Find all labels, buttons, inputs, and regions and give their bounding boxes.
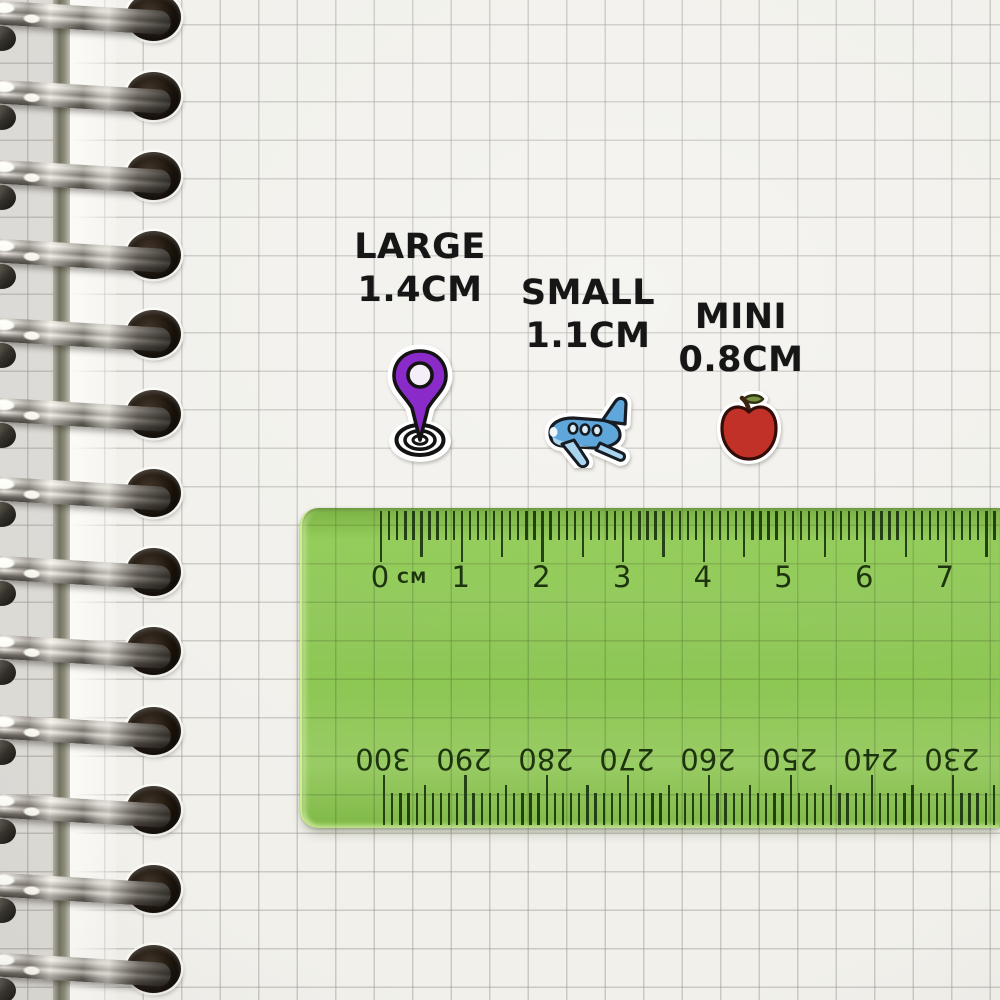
ruler-tick [501,511,503,557]
ruler-tick [741,793,743,825]
ruler-number: 1 [451,560,469,594]
ruler-tick [798,793,800,825]
ruler-number-flipped: 260 [681,742,736,776]
ruler-tick [733,793,735,825]
ruler-tick [651,793,653,825]
ruler-tick [840,511,842,540]
ruler-tick [800,511,802,540]
ruler-tick [895,793,897,825]
ruler-tick [646,511,648,540]
ruler-tick [440,793,442,825]
ruler-tick [614,511,616,540]
ruler-tick [549,511,551,540]
ruler-tick [921,511,923,540]
ruler-tick [871,775,873,825]
label-small-size: 1.1CM [521,315,655,358]
ruler-tick [582,511,584,557]
ruler-tick [537,793,539,825]
ruler-tick [464,775,466,825]
ruler-tick [635,793,637,825]
ruler-tick [558,511,560,540]
label-large-name: LARGE [354,226,485,269]
ruler-tick [929,511,931,540]
ruler-tick [546,775,548,825]
ruler-tick [700,793,702,825]
ruler-tick [630,511,632,540]
ruler-tick [428,511,430,540]
ruler-tick [603,793,605,825]
ruler-tick [985,511,987,557]
ruler-tick [830,785,832,825]
ruler-tick [391,793,393,825]
ruler-tick [420,511,422,557]
location-pin-sticker [385,344,455,463]
ruler-tick [469,511,471,540]
ruler-number-flipped: 290 [437,742,492,776]
ruler-tick [848,511,850,540]
ruler-surface-sheen [300,508,1000,828]
ruler-tick [570,793,572,825]
ruler-tick [380,511,382,562]
ruler-tick [887,793,889,825]
ruler-tick [905,511,907,557]
label-large: LARGE 1.4CM [354,226,485,311]
ruler-tick [913,511,915,540]
ruler-number-flipped: 250 [762,742,817,776]
ruler-tick [993,511,995,540]
ruler-tick [554,793,556,825]
ruler-tick [432,793,434,825]
ruler-tick [888,511,890,540]
ruler-tick [928,793,930,825]
ruler-number: 4 [694,560,712,594]
ruler-tick [687,511,689,540]
ruler-tick [407,793,409,825]
ruler-tick [453,511,455,540]
ruler-tick [806,793,808,825]
ruler-tick [513,793,515,825]
ruler-number-flipped: 300 [355,742,410,776]
ruler-number: 5 [774,560,792,594]
apple-sticker [710,391,789,468]
ruler-tick [578,793,580,825]
ruler-tick [952,775,954,825]
ruler-tick [445,511,447,540]
ruler-tick [627,775,629,825]
ruler-tick [448,793,450,825]
ruler-tick [412,511,414,540]
ruler-tick [388,511,390,540]
ruler-tick [505,785,507,825]
ruler-tick [708,775,710,825]
ruler-tick [692,793,694,825]
ruler-tick [724,793,726,825]
ruler-unit-label: CM [397,568,428,587]
ruler-tick [896,511,898,540]
ruler-tick [953,511,955,540]
ruler-tick [838,793,840,825]
ruler-tick [489,793,491,825]
ruler-tick [945,511,947,562]
ruler-tick [521,793,523,825]
ruler-tick [679,511,681,540]
ruler-tick [598,511,600,540]
ruler-tick [472,793,474,825]
ruler-tick [864,511,866,562]
ruler-tick [816,511,818,540]
ruler-tick [676,793,678,825]
ruler-tick [562,793,564,825]
ruler-tick [716,793,718,825]
ruler-tick [668,785,670,825]
ruler-number-flipped: 270 [599,742,654,776]
ruler-tick [911,785,913,825]
ruler-tick [662,511,664,557]
ruler-tick [590,511,592,540]
ruler-tick [456,793,458,825]
ruler-tick [773,793,775,825]
airplane-sticker [540,391,645,468]
ruler-tick [936,793,938,825]
ruler-tick [784,511,786,562]
ruler-tick [606,511,608,540]
ruler-tick [977,511,979,540]
ruler-tick [832,511,834,540]
ruler-tick [622,511,624,562]
ruler-tick [879,793,881,825]
ruler-tick [529,793,531,825]
ruler-tick [903,793,905,825]
ruler: 01234567 CM 300290280270260250240230 [300,508,1000,828]
ruler-tick [856,511,858,540]
ruler-tick [711,511,713,540]
ruler-number: 3 [613,560,631,594]
ruler-tick [872,511,874,540]
ruler-tick [767,511,769,540]
ruler-tick [533,511,535,540]
ruler-tick [937,511,939,540]
ruler-tick [775,511,777,540]
ruler-number: 2 [532,560,550,594]
ruler-tick [960,793,962,825]
ruler-tick [822,793,824,825]
ruler-tick [759,511,761,540]
ruler-tick [976,793,978,825]
ruler-tick [743,511,745,557]
ruler-tick [790,775,792,825]
ruler-tick [757,793,759,825]
ruler-tick [814,793,816,825]
ruler-tick [594,793,596,825]
ruler-tick [968,793,970,825]
ruler-tick [944,793,946,825]
ruler-tick [824,511,826,557]
ruler-tick [525,511,527,540]
ruler-tick [477,511,479,540]
ruler-tick [481,793,483,825]
ruler-tick [751,511,753,540]
ruler-tick [424,785,426,825]
label-small: SMALL 1.1CM [521,272,655,357]
ruler-tick [969,511,971,540]
ruler-number: 7 [936,560,954,594]
ruler-number: 6 [855,560,873,594]
label-mini: MINI 0.8CM [678,296,803,381]
ruler-tick [961,511,963,540]
ruler-tick [695,511,697,540]
ruler-tick [654,511,656,540]
label-mini-size: 0.8CM [678,339,803,382]
ruler-tick [792,511,794,540]
ruler-number: 0 [371,560,389,594]
ruler-tick [765,793,767,825]
ruler-tick [880,511,882,540]
ruler-tick [493,511,495,540]
ruler-number-flipped: 240 [843,742,898,776]
ruler-tick [509,511,511,540]
ruler-number-flipped: 280 [518,742,573,776]
ruler-tick [659,793,661,825]
label-large-size: 1.4CM [354,269,485,312]
ruler-tick [781,793,783,825]
label-mini-name: MINI [678,296,803,339]
ruler-tick [461,511,463,562]
ruler-tick [611,793,613,825]
ruler-number-flipped: 230 [924,742,979,776]
ruler-tick [749,785,751,825]
ruler-tick [541,511,543,562]
ruler-tick [485,511,487,540]
ruler-tick [619,793,621,825]
ruler-tick [735,511,737,540]
ruler-tick [920,793,922,825]
label-small-name: SMALL [521,272,655,315]
ruler-tick [719,511,721,540]
ruler-tick [846,793,848,825]
ruler-tick [671,511,673,540]
notebook-photo: LARGE 1.4CM SMALL 1.1CM MINI 0.8CM [0,0,1000,1000]
ruler-tick [396,511,398,540]
ruler-tick [638,511,640,540]
ruler-tick [643,793,645,825]
ruler-tick [497,793,499,825]
ruler-tick [404,511,406,540]
ruler-tick [383,775,385,825]
ruler-tick [684,793,686,825]
ruler-tick [586,785,588,825]
ruler-tick [574,511,576,540]
ruler-tick [985,793,987,825]
ruler-tick [517,511,519,540]
ruler-tick [808,511,810,540]
ruler-tick [703,511,705,562]
ruler-tick [855,793,857,825]
ruler-tick [399,793,401,825]
ruler-tick [416,793,418,825]
ruler-tick [727,511,729,540]
ruler-tick [436,511,438,540]
ruler-tick [993,785,995,825]
ruler-tick [566,511,568,540]
ruler-tick [863,793,865,825]
